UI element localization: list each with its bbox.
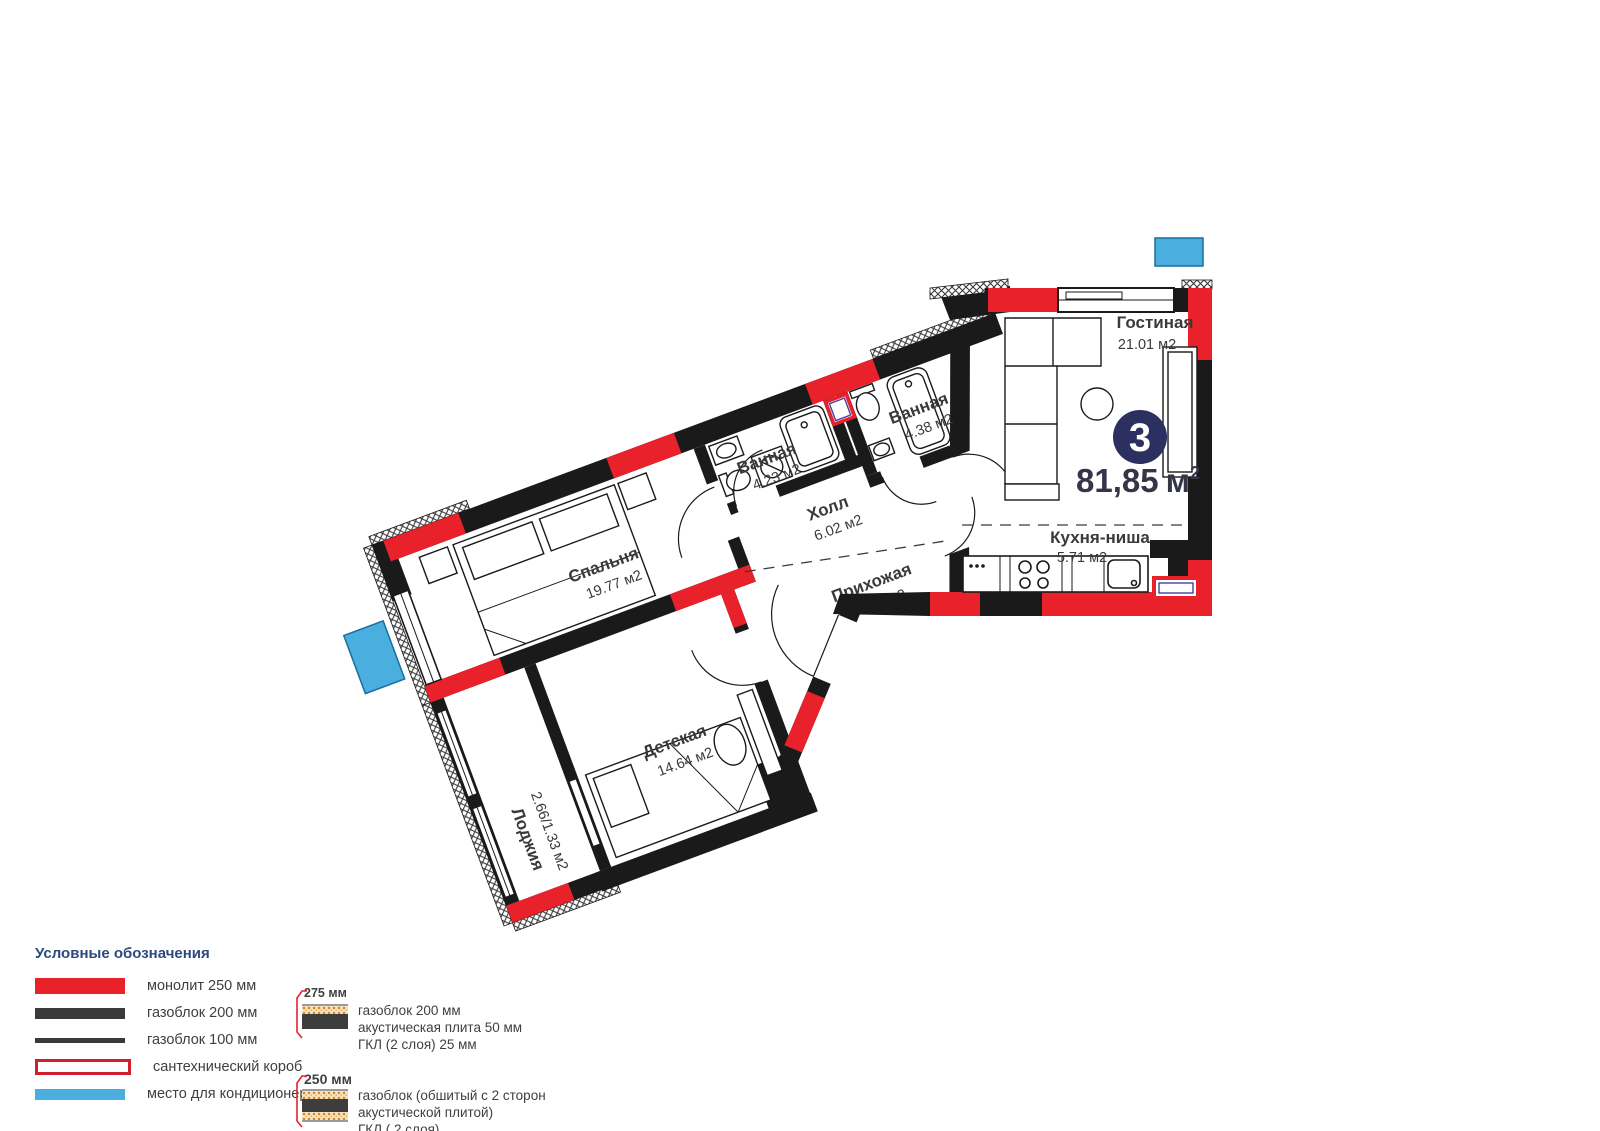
room-label-kitchen: Кухня-ниша (1050, 528, 1150, 547)
bathroom1-door-arc (882, 462, 936, 516)
legend-item-plumbing-box: сантехнический короб (35, 1059, 285, 1075)
room-label-loggia-group: Лоджия 2.66/1.33 м2 (505, 790, 571, 881)
plumbing-box-bath (826, 394, 855, 424)
plumbing-box-swatch-icon (35, 1059, 131, 1075)
bedroom-door-arc (663, 487, 734, 558)
wall-type-specs: 275 мм газоблок 200 мм акустическая плит… (296, 972, 626, 1131)
legend-item-ac-place: место для кондиционера (35, 1086, 285, 1102)
legend-title: Условные обозначения (35, 945, 285, 962)
monolith-swatch-icon (35, 978, 125, 994)
entrance-door-arc (759, 584, 814, 683)
room-label-living: Гостиная (1117, 313, 1194, 332)
double-door-arc-2 (929, 497, 988, 556)
ac-unit-icon (1155, 238, 1203, 266)
wall-type-275-swatch-icon (302, 1004, 348, 1029)
wall-type-275: 275 мм газоблок 200 мм акустическая плит… (296, 1002, 626, 1053)
gasblock-100-swatch-icon (35, 1038, 125, 1043)
nightstand (618, 473, 656, 510)
counter-dots-icon (969, 564, 985, 568)
total-area: 81,85м2 (1076, 462, 1200, 499)
unit-number: 3 (1129, 416, 1151, 460)
room-area-living: 21.01 м2 (1118, 337, 1176, 353)
wall-type-dimension: 250 мм (304, 1071, 352, 1087)
living-window (1058, 288, 1174, 312)
ac-place-swatch-icon (35, 1089, 125, 1100)
legend: Условные обозначения монолит 250 мм газо… (35, 945, 285, 1113)
plumbing-box-kitchen (1154, 578, 1198, 598)
legend-item-monolith: монолит 250 мм (35, 978, 285, 994)
legend-item-gasblock-100: газоблок 100 мм (35, 1032, 285, 1048)
wall-type-dimension: 275 мм (304, 986, 347, 1000)
wall-type-250: 250 мм газоблок (обшитый с 2 сторон акус… (296, 1087, 626, 1131)
kitchen-sink-icon (1108, 560, 1140, 588)
unit-badge: 3 (1113, 410, 1167, 464)
wall-type-250-swatch-icon (302, 1089, 348, 1122)
right-wing: Гостиная 21.01 м2 Кухня-ниша 5.71 м2 3 8… (833, 238, 1212, 616)
legend-item-gasblock-200: газоблок 200 мм (35, 1005, 285, 1021)
room-area-kitchen: 5.71 м2 (1057, 550, 1107, 566)
wardrobe (1163, 347, 1197, 477)
floor-plan-page: Спальня 19.77 м2 Ванная 4.23 м2 Ванная 4… (0, 0, 1600, 1131)
gasblock-200-swatch-icon (35, 1008, 125, 1019)
kitchen-counter (963, 556, 1148, 592)
coffee-table (1081, 388, 1113, 420)
corner-hatch (1182, 280, 1212, 289)
nightstand (419, 547, 457, 584)
